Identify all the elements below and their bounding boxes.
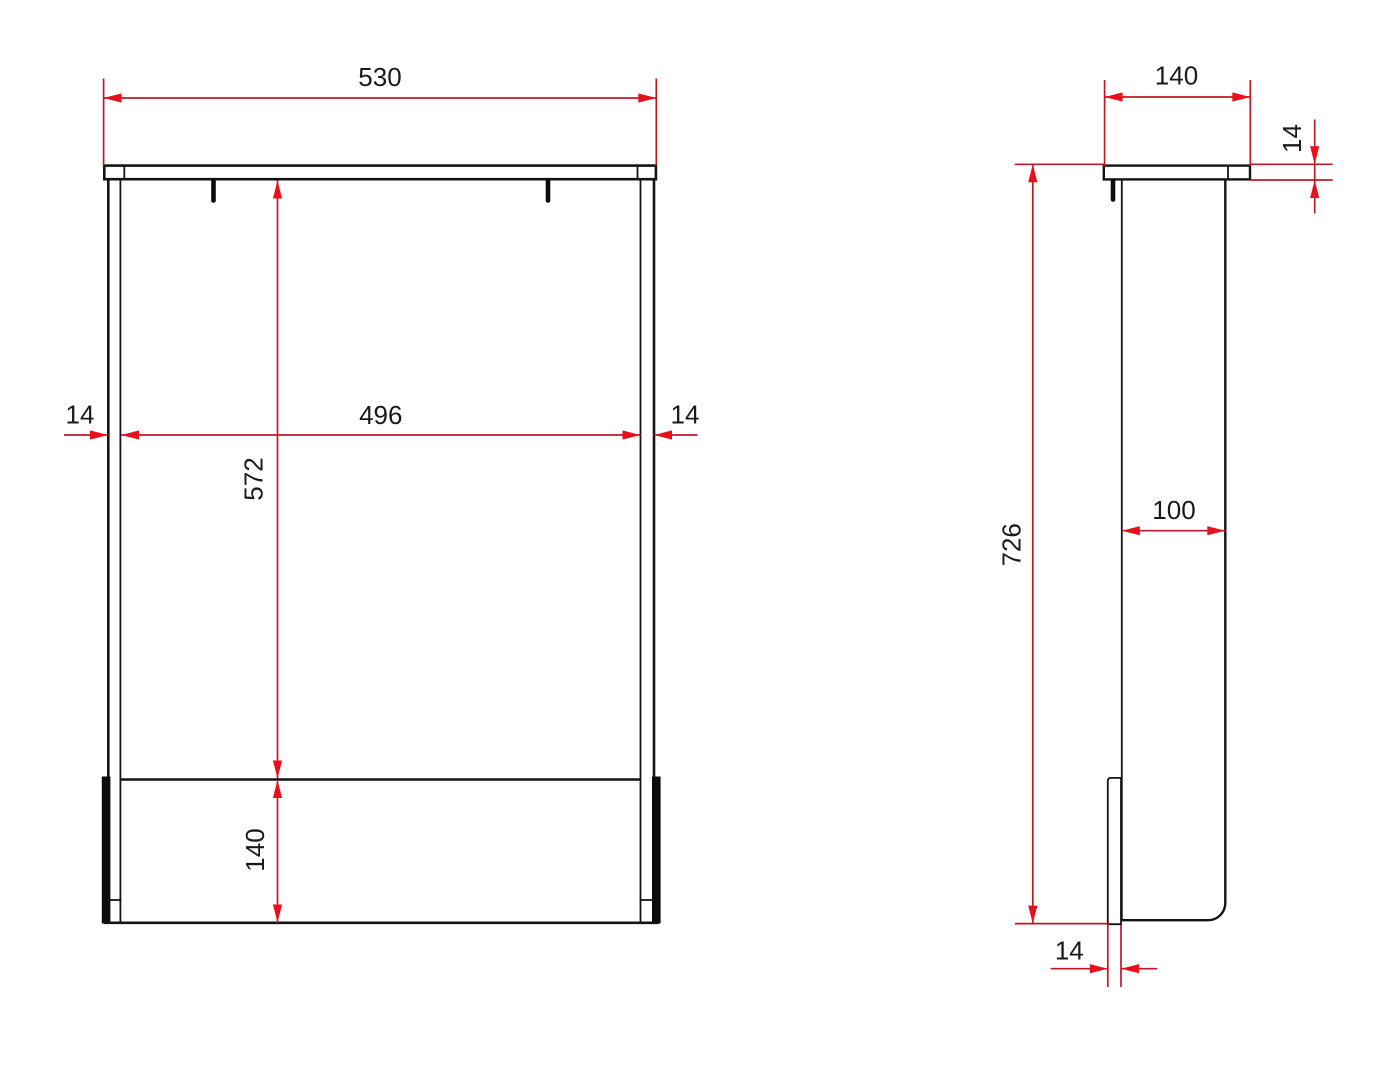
svg-text:14: 14 [66,400,95,430]
svg-text:140: 140 [240,828,270,871]
svg-text:140: 140 [1155,61,1198,91]
svg-text:100: 100 [1152,495,1195,525]
svg-text:14: 14 [671,400,700,430]
svg-text:530: 530 [358,62,401,92]
svg-text:14: 14 [1055,936,1084,966]
svg-text:496: 496 [359,400,402,430]
svg-text:726: 726 [997,523,1027,566]
svg-text:14: 14 [1277,124,1307,153]
svg-text:572: 572 [239,457,269,500]
